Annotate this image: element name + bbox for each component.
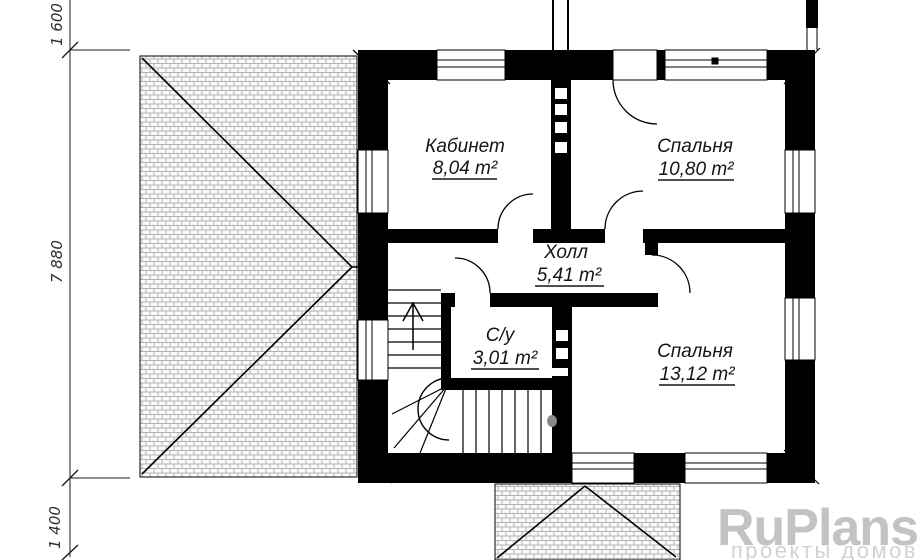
porch-roof-hatch <box>495 484 680 560</box>
watermark-tagline: проекты домов <box>731 538 918 560</box>
wall-left <box>358 50 388 483</box>
balcony-door-opening <box>613 50 657 80</box>
wall-interior-h1a <box>358 229 498 243</box>
room-area-office: 8,04 m² <box>433 158 498 179</box>
wall-bath-left <box>441 293 451 390</box>
dimension-label-top: 1 600 <box>48 3 66 46</box>
watermark: RuPlans проекты домов <box>717 499 918 560</box>
window-left-stair <box>358 320 388 380</box>
dimension-label-middle: 7 880 <box>48 240 66 283</box>
window-top-bedroom <box>665 50 767 80</box>
window-right-bedroom1 <box>785 150 815 213</box>
room-label-bedroom1: Спальня <box>657 136 733 157</box>
wall-right <box>785 50 815 483</box>
room-area-hall: 5,41 m² <box>537 265 602 286</box>
floor-plan-canvas: 1 600 7 880 1 400 Кабинет 8,04 m² Спальн… <box>0 0 920 560</box>
left-roof-hatch <box>140 56 358 477</box>
room-label-hall: Холл <box>543 242 588 263</box>
room-area-bath: 3,01 m² <box>473 348 538 369</box>
window-bottom-bedroom2b <box>685 453 767 483</box>
dimension-label-bottom: 1 400 <box>46 506 64 549</box>
room-area-bedroom1: 10,80 m² <box>659 159 735 180</box>
window-left-office <box>358 150 388 213</box>
wall-interior-h1c <box>643 229 785 243</box>
window-bottom-bedroom2a <box>572 453 634 483</box>
room-label-office: Кабинет <box>425 136 505 157</box>
stair-newel <box>547 415 557 427</box>
window-right-bedroom2 <box>785 298 815 360</box>
wall-interior-v1 <box>645 243 658 255</box>
wall-hall-bottom <box>490 293 658 307</box>
room-label-bedroom2: Спальня <box>657 341 733 362</box>
room-label-bath: С/у <box>486 325 516 346</box>
wall-interior-h1b <box>533 229 605 243</box>
room-area-bedroom2: 13,12 m² <box>660 364 736 385</box>
window-top-office <box>437 50 505 80</box>
